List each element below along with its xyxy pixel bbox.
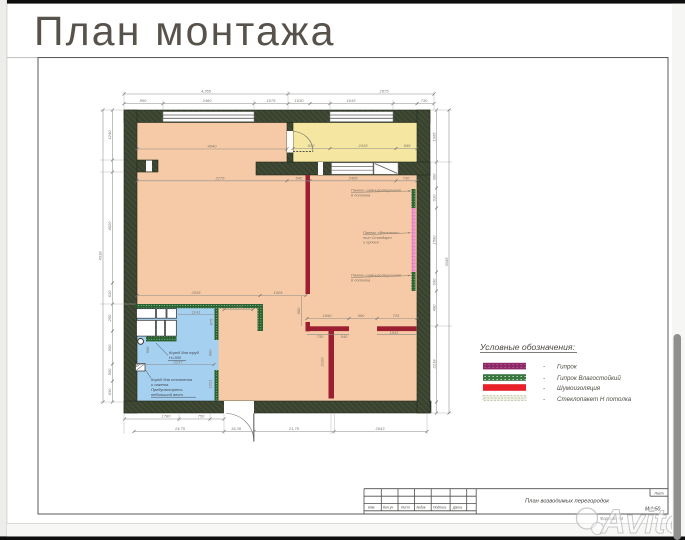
- svg-text:4020: 4020: [107, 221, 112, 231]
- svg-text:600: 600: [107, 344, 112, 351]
- svg-text:1780: 1780: [162, 414, 172, 419]
- svg-text:930: 930: [308, 143, 315, 148]
- svg-text:Кол.уч: Кол.уч: [383, 506, 393, 510]
- svg-text:960: 960: [358, 313, 365, 318]
- svg-text:730: 730: [317, 334, 324, 339]
- svg-text:630: 630: [107, 388, 112, 395]
- svg-text:№док: №док: [417, 506, 426, 510]
- svg-text:300: 300: [431, 173, 436, 180]
- svg-text:600: 600: [296, 307, 301, 314]
- svg-text:2120: 2120: [320, 357, 325, 368]
- svg-text:-: -: [543, 385, 545, 392]
- svg-text:2460: 2460: [202, 98, 213, 103]
- svg-text:500: 500: [107, 368, 112, 375]
- svg-text:610: 610: [107, 290, 112, 297]
- svg-text:4040: 4040: [208, 144, 218, 149]
- svg-text:Шумоизоляция: Шумоизоляция: [557, 385, 601, 392]
- svg-text:630: 630: [431, 278, 436, 285]
- svg-text:24,75: 24,75: [174, 426, 186, 431]
- svg-text:1541: 1541: [390, 330, 399, 335]
- svg-text:3345: 3345: [444, 257, 449, 267]
- svg-text:900: 900: [208, 349, 213, 356]
- svg-text:-: -: [543, 364, 545, 371]
- svg-text:1090: 1090: [323, 313, 333, 318]
- svg-text:1075: 1075: [267, 98, 277, 103]
- svg-text:2237: 2237: [173, 359, 184, 364]
- svg-text:Лист: Лист: [400, 506, 410, 510]
- svg-text:640: 640: [296, 176, 303, 181]
- svg-text:850: 850: [140, 98, 147, 103]
- svg-text:-: -: [543, 396, 545, 403]
- svg-text:2276: 2276: [215, 176, 226, 181]
- svg-text:H=300: H=300: [169, 355, 182, 360]
- svg-text:4,355: 4,355: [201, 89, 212, 94]
- svg-text:750: 750: [198, 414, 205, 419]
- svg-text:Изм.: Изм.: [368, 506, 375, 510]
- svg-text:Стеклопакет Н потолка: Стеклопакет Н потолка: [557, 396, 632, 403]
- svg-text:1005: 1005: [274, 290, 284, 295]
- svg-text:726: 726: [393, 313, 400, 318]
- svg-text:730: 730: [403, 176, 410, 181]
- svg-text:План монтажа: План монтажа: [34, 8, 336, 54]
- svg-text:490: 490: [431, 304, 436, 311]
- svg-text:610: 610: [431, 194, 436, 201]
- svg-text:1221: 1221: [208, 380, 213, 389]
- svg-text:540: 540: [341, 334, 348, 339]
- svg-text:2035: 2035: [191, 290, 202, 295]
- svg-text:2218: 2218: [431, 359, 436, 370]
- svg-text:1366: 1366: [431, 132, 436, 142]
- svg-text:К потолка: К потолка: [351, 277, 371, 282]
- svg-text:К потолка: К потолка: [351, 192, 371, 197]
- svg-text:План возводимых перегородок: План возводимых перегородок: [525, 499, 609, 505]
- svg-text:Гипрок Влагостойкий: Гипрок Влагостойкий: [557, 375, 621, 382]
- svg-text:250: 250: [107, 314, 112, 322]
- svg-text:15,35: 15,35: [231, 426, 242, 431]
- svg-text:1141: 1141: [192, 309, 201, 314]
- svg-text:1030: 1030: [295, 98, 305, 103]
- svg-text:Дата: Дата: [452, 506, 462, 510]
- svg-text:998: 998: [145, 346, 150, 353]
- svg-text:2675: 2675: [379, 89, 390, 94]
- svg-text:-: -: [543, 375, 545, 382]
- svg-text:2643: 2643: [375, 426, 386, 431]
- svg-text:1615: 1615: [347, 98, 357, 103]
- svg-text:2405: 2405: [348, 176, 359, 181]
- svg-text:2415: 2415: [358, 143, 369, 148]
- svg-text:730: 730: [421, 98, 428, 103]
- svg-text:небольшой вент: небольшой вент: [151, 392, 183, 397]
- svg-text:4318: 4318: [98, 251, 103, 261]
- svg-text:669: 669: [404, 143, 411, 148]
- svg-text:1240: 1240: [107, 130, 112, 140]
- svg-text:Условные обозначения:: Условные обозначения:: [479, 342, 575, 352]
- svg-text:и прочее: и прочее: [363, 240, 380, 245]
- svg-text:Подпись: Подпись: [433, 506, 447, 510]
- svg-text:1770: 1770: [234, 304, 244, 309]
- svg-text:21,75: 21,75: [288, 426, 300, 431]
- svg-text:Гипрок: Гипрок: [557, 364, 578, 371]
- svg-text:Лист: Лист: [653, 491, 663, 495]
- svg-text:1560: 1560: [431, 235, 436, 245]
- svg-text:875: 875: [209, 318, 214, 325]
